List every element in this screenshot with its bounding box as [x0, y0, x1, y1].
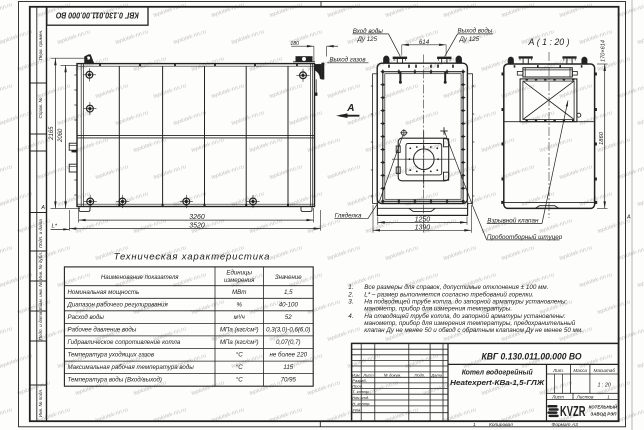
- svg-text:Гидравлическое сопротивление к: Гидравлическое сопротивление котла: [68, 339, 181, 346]
- svg-text:170×614: 170×614: [601, 40, 607, 62]
- svg-text:3260: 3260: [189, 214, 205, 221]
- svg-text:Heatexpert-КВа-1,5-ГЛЖ: Heatexpert-КВа-1,5-ГЛЖ: [450, 378, 544, 387]
- svg-text:манометр, прибор для измерения: манометр, прибор для измерения температу…: [364, 319, 576, 327]
- svg-text:КОТЕЛЬНЫЙ: КОТЕЛЬНЫЙ: [589, 404, 618, 409]
- svg-text:м³/ч: м³/ч: [234, 314, 246, 321]
- svg-text:Пров.: Пров.: [352, 384, 363, 389]
- svg-text:52: 52: [285, 314, 292, 321]
- svg-text:3520: 3520: [189, 223, 205, 230]
- svg-text:614: 614: [419, 39, 430, 46]
- svg-text:70/95: 70/95: [281, 377, 297, 384]
- svg-text:ЗАВОД РЭП: ЗАВОД РЭП: [590, 411, 617, 416]
- svg-text:Подп. и дата: Подп. и дата: [38, 219, 43, 248]
- svg-text:2165: 2165: [49, 126, 55, 141]
- svg-text:Диапазон рабочего регулировани: Диапазон рабочего регулирования: [67, 301, 169, 308]
- svg-text:Единицы: Единицы: [226, 270, 252, 277]
- svg-text:Температура воды (Вход/выход): Температура воды (Вход/выход): [68, 377, 162, 384]
- svg-text:1860: 1860: [599, 131, 605, 145]
- svg-text:На подводящей трубе котла, до: На подводящей трубе котла, до запорной а…: [364, 298, 567, 306]
- svg-text:1: 1: [607, 394, 610, 399]
- svg-text:Значение: Значение: [275, 274, 302, 281]
- svg-text:Справ. №: Справ. №: [38, 98, 43, 119]
- svg-text:МПа (кгс/см²): МПа (кгс/см²): [220, 326, 259, 333]
- svg-text:0,3(3,0)-0,6(6,0): 0,3(3,0)-0,6(6,0): [266, 326, 310, 333]
- svg-text:1: 1: [473, 422, 476, 428]
- svg-text:1,5: 1,5: [284, 289, 293, 296]
- svg-text:2060: 2060: [58, 128, 64, 143]
- svg-text:Температура уходящих газов: Температура уходящих газов: [68, 352, 155, 359]
- svg-text:Листов: Листов: [576, 394, 594, 399]
- svg-text:Подп.: Подп.: [414, 372, 425, 377]
- svg-text:1390: 1390: [415, 225, 431, 232]
- svg-text:Т. контр.: Т. контр.: [352, 389, 369, 394]
- svg-text:Перв. примен.: Перв. примен.: [38, 30, 43, 61]
- svg-text:Рабочее давление воды: Рабочее давление воды: [68, 326, 137, 333]
- svg-text:Утв.: Утв.: [352, 407, 361, 412]
- svg-text:40-100: 40-100: [279, 301, 299, 308]
- svg-text:Дата: Дата: [430, 372, 442, 377]
- svg-text:3.: 3.: [348, 299, 353, 306]
- svg-text:КВГ 0.130.011.00.000 ВО: КВГ 0.130.011.00.000 ВО: [482, 351, 582, 362]
- svg-text:Выход воды: Выход воды: [458, 27, 493, 34]
- svg-text:Номинальная мощность: Номинальная мощность: [68, 289, 140, 296]
- svg-text:Масса: Масса: [573, 368, 587, 373]
- svg-text:Формат А3: Формат А3: [552, 422, 579, 428]
- svg-text:Гляделка: Гляделка: [335, 212, 362, 220]
- svg-text:Максимальная рабочая температу: Максимальная рабочая температура воды: [68, 364, 195, 371]
- svg-text:Н. контр.: Н. контр.: [352, 401, 370, 406]
- svg-text:1250: 1250: [415, 217, 431, 224]
- svg-text:°С: °С: [236, 364, 243, 371]
- svg-text:Ду 125: Ду 125: [459, 36, 480, 43]
- svg-text:2.: 2.: [347, 291, 353, 298]
- svg-text:1 : 20: 1 : 20: [597, 383, 611, 389]
- svg-text:Лист: Лист: [551, 394, 564, 399]
- svg-text:А: А: [40, 205, 45, 211]
- svg-text:Расход воды: Расход воды: [68, 314, 105, 321]
- svg-text:Масштаб: Масштаб: [593, 368, 615, 373]
- svg-text:Инв. № дубл.: Инв. № дубл.: [38, 252, 43, 280]
- svg-text:Лит.: Лит.: [552, 368, 564, 373]
- svg-text:Взам. инв. №: Взам. инв. №: [38, 282, 43, 310]
- svg-text:не более 220: не более 220: [270, 352, 308, 359]
- svg-text:КВГ 0.130.011.00.000 ВО: КВГ 0.130.011.00.000 ВО: [56, 11, 139, 21]
- svg-text:Разраб.: Разраб.: [352, 378, 366, 383]
- svg-text:%: %: [236, 301, 242, 308]
- svg-text:Наименование показателя: Наименование показателя: [101, 274, 179, 281]
- svg-text:°С: °С: [236, 352, 243, 359]
- svg-text:4.: 4.: [348, 313, 353, 320]
- svg-text:клапан Ду не менее 50 и обвод: клапан Ду не менее 50 и обвод с обратным…: [364, 326, 583, 334]
- svg-text:Инв. № подл.: Инв. № подл.: [38, 389, 43, 418]
- svg-text:KVZR: KVZR: [560, 404, 586, 420]
- svg-text:измерения: измерения: [224, 277, 255, 284]
- svg-text:1.: 1.: [348, 284, 353, 291]
- svg-text:Изм.: Изм.: [352, 372, 361, 377]
- svg-text:Нач.отд.: Нач.отд.: [352, 395, 369, 400]
- svg-text:МПа (кгс/см²): МПа (кгс/см²): [220, 339, 259, 346]
- svg-text:Котел водогрейный: Котел водогрейный: [462, 367, 534, 376]
- svg-text:Ду 125: Ду 125: [357, 36, 378, 43]
- svg-text:L* – размер выполняется соглас: L* – размер выполняется согласно требова…: [364, 290, 534, 298]
- svg-text:А: А: [346, 103, 354, 114]
- svg-text:МВт: МВт: [232, 289, 246, 296]
- svg-text:А: А: [626, 215, 631, 221]
- svg-text:№ докум.: № докум.: [384, 372, 402, 377]
- svg-text:°С: °С: [236, 377, 243, 384]
- svg-text:манометр, прибор для измерения: манометр, прибор для измерения температу…: [364, 305, 512, 313]
- svg-text:Подп. и дата: Подп. и дата: [38, 311, 43, 340]
- svg-text:Лист: Лист: [362, 372, 374, 377]
- svg-text:0,07(0,7): 0,07(0,7): [276, 339, 301, 346]
- svg-text:На отводящей трубе котла, до з: На отводящей трубе котла, до запорной ар…: [364, 312, 566, 320]
- svg-text:Техническая характеристика: Техническая характеристика: [114, 252, 271, 263]
- svg-text:L*: L*: [52, 223, 58, 229]
- svg-text:Копировал: Копировал: [489, 422, 513, 428]
- svg-text:115: 115: [283, 364, 293, 371]
- svg-text:А ( 1 : 20 ): А ( 1 : 20 ): [527, 37, 569, 47]
- svg-text:Все размеры для справок, допус: Все размеры для справок, допустимые откл…: [364, 283, 548, 291]
